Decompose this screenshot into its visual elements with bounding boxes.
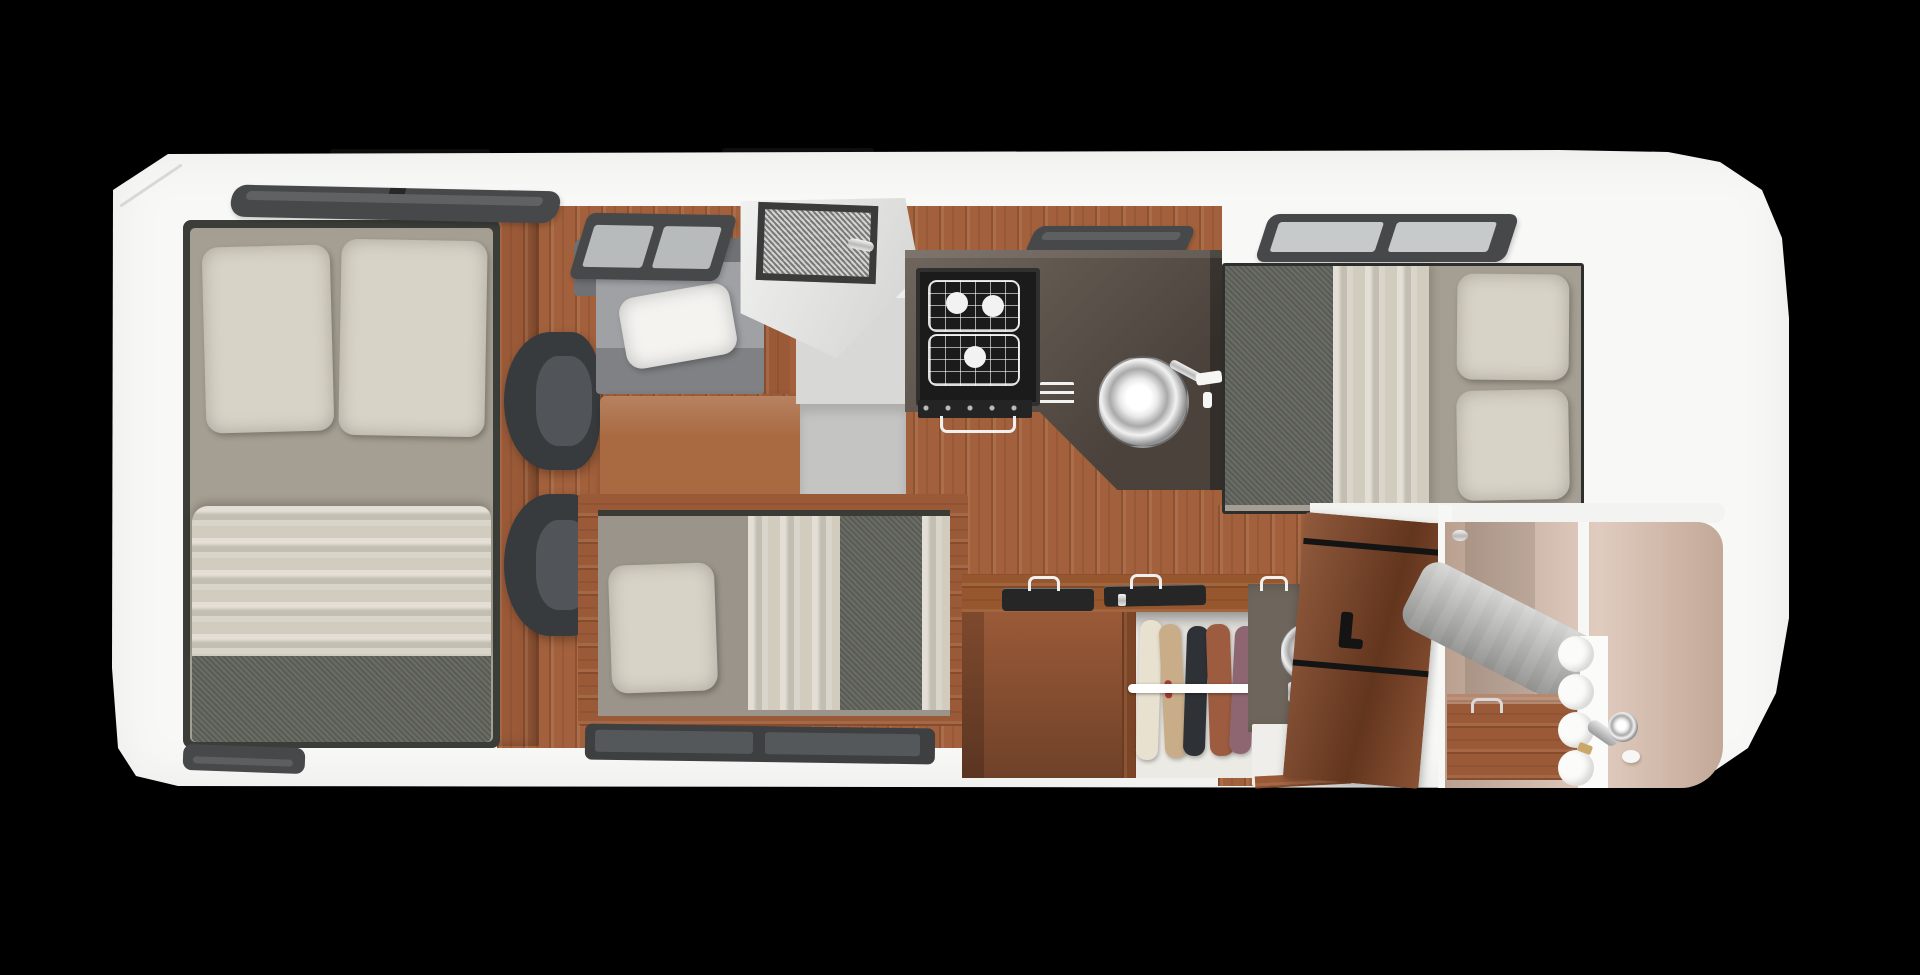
- window-under-sofa-bed: [585, 724, 935, 765]
- rear-bed-pillow-bottom: [1456, 389, 1570, 501]
- bedroom-partition-wall: [497, 206, 539, 746]
- storage-cabinet-side-shade: [962, 612, 984, 778]
- storage-tray-left-handle: [1028, 576, 1060, 591]
- kitchen-counter-top-edge: [905, 250, 1222, 258]
- bathroom-door-trim-middle: [1293, 659, 1429, 677]
- stove: [916, 268, 1040, 406]
- sofa-bed-duvet: [748, 516, 840, 710]
- window-front-left-latch: [389, 188, 407, 194]
- window-dinette-pane-left: [582, 225, 654, 268]
- storage-tray-left: [1002, 588, 1094, 611]
- stove-grate-top: [928, 280, 1020, 332]
- curtain-pleat-1: [1558, 636, 1594, 672]
- window-front-left: [227, 185, 564, 224]
- master-duvet: [192, 506, 491, 658]
- master-pillow-left: [202, 244, 335, 433]
- stove-burner-1: [946, 292, 968, 314]
- cab-front-edge: [119, 164, 182, 208]
- armchair-top: [504, 332, 600, 470]
- stove-burner-3: [964, 346, 986, 368]
- curtain-pleat-2: [1558, 674, 1594, 710]
- curtain-pleat-4: [1558, 750, 1594, 786]
- window-rear-left-small-highlight: [193, 756, 293, 766]
- wardrobe-wall-left: [1122, 612, 1136, 778]
- window-rear-bed: [1254, 214, 1520, 262]
- bathroom-door-trim-top: [1303, 538, 1439, 556]
- rear-bed-pillow-top: [1457, 274, 1570, 381]
- kitchen-faucet-knob: [1203, 392, 1212, 408]
- rear-bed-duvet: [1333, 266, 1429, 505]
- master-bed: [183, 220, 500, 748]
- window-dinette-pane-right: [652, 226, 722, 269]
- master-blanket: [192, 656, 491, 742]
- oven-handle: [940, 416, 1016, 433]
- shower-mixer-knob: [1452, 530, 1468, 541]
- toilet-room-handle: [1260, 576, 1288, 591]
- bathroom-door: [1283, 512, 1442, 789]
- soap-bar: [1622, 750, 1640, 763]
- sofa-bed-pillow: [608, 562, 718, 694]
- sofa-bed-fold-right: [922, 516, 950, 710]
- kitchen-towel-rack: [1040, 382, 1074, 408]
- master-pillow-right: [338, 239, 487, 438]
- shower-head: [1608, 712, 1638, 742]
- window-rear-bed-pane-left: [1269, 222, 1384, 252]
- storage-latch: [1118, 594, 1126, 606]
- window-kitchen-highlight: [1040, 232, 1182, 240]
- window-under-sofa-bed-pane-right: [765, 732, 920, 756]
- armchair-top-seat: [536, 356, 592, 446]
- shower-accordion-curtain: [1558, 636, 1608, 788]
- window-dinette: [568, 213, 737, 282]
- sofa-bed-frame: [578, 494, 968, 726]
- storage-tray-right-handle: [1130, 574, 1162, 589]
- wardrobe-clothes-rod: [1128, 684, 1266, 693]
- rear-bed: [1222, 263, 1584, 514]
- window-rear-left-small: [183, 744, 306, 774]
- sofa-bed-blanket: [840, 516, 922, 710]
- window-under-sofa-bed-pane-left: [595, 730, 753, 754]
- entry-step-lower: [800, 404, 906, 500]
- bathroom-cabinet-handle: [1471, 698, 1503, 713]
- floorplan-canvas: [0, 0, 1920, 975]
- storage-cabinet-front: [962, 612, 1122, 778]
- stove-burner-2: [982, 295, 1004, 317]
- rear-bed-blanket: [1225, 266, 1333, 505]
- master-bed-sheet: [190, 228, 493, 742]
- sofa-bed-sheet: [598, 510, 950, 716]
- window-rear-bed-pane-right: [1387, 222, 1497, 252]
- bathroom-door-handle-foot: [1338, 637, 1363, 649]
